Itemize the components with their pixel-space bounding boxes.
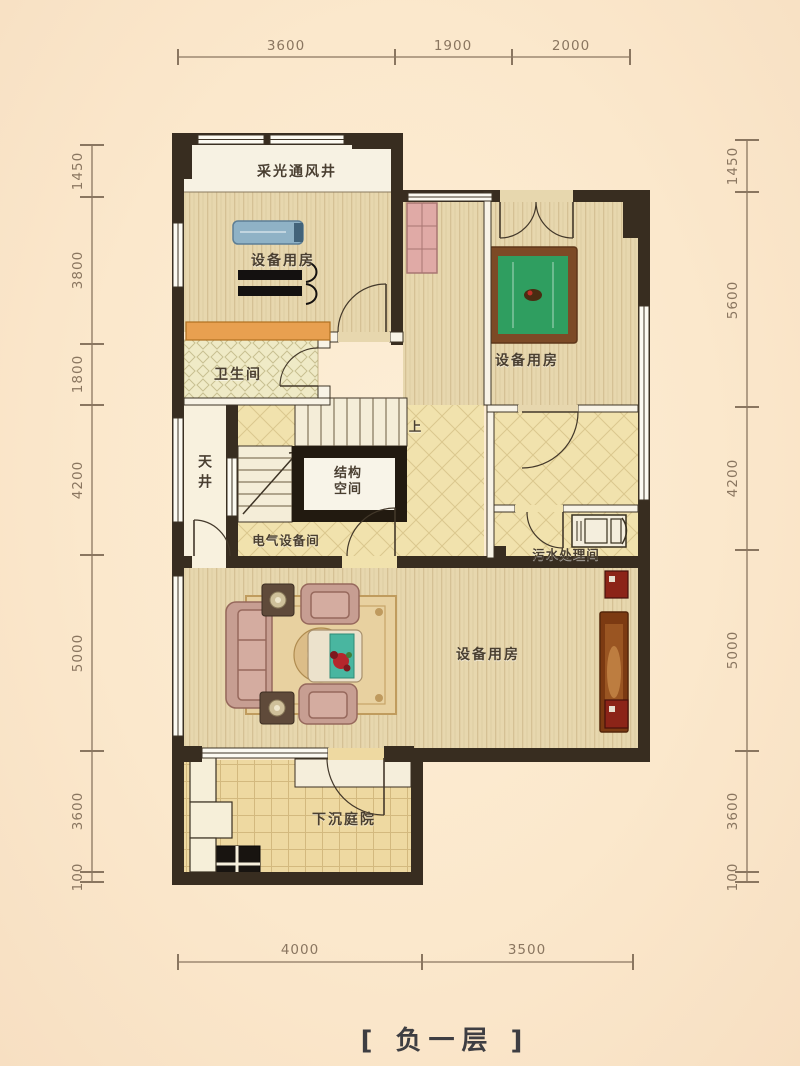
room-label-electrical: 电气设备间 <box>211 530 361 549</box>
room-label-sewage: 污水处理间 <box>496 544 636 563</box>
coffee-table <box>308 630 362 682</box>
dimension-label: 3600 <box>725 781 741 841</box>
stairs-up-label: 上 <box>406 416 424 435</box>
room-label-lightwell: 天井 <box>194 434 214 514</box>
dimension-label: 4000 <box>260 942 340 958</box>
dimension-label: 3800 <box>70 240 86 300</box>
counter <box>186 322 330 340</box>
treadmill <box>233 221 303 244</box>
dimension-label: 2000 <box>531 38 611 54</box>
courtyard-landing <box>295 759 411 787</box>
room-label-shaft: 采光通风井 <box>217 161 377 181</box>
storage-cabinet <box>407 203 437 273</box>
dimension-label: 100 <box>725 847 741 907</box>
dimension-label: 4200 <box>70 450 86 510</box>
washing-machine <box>572 515 627 547</box>
dimension-label: 4200 <box>725 448 741 508</box>
floor-plan: 采光通风井 设备用房 卫生间 天井 结构空间 电气设备间 污水处理间 设备用房 … <box>0 0 800 1066</box>
dimension-label: 3500 <box>487 942 567 958</box>
dimension-label: 5600 <box>725 270 741 330</box>
dimension-label: 100 <box>70 847 86 907</box>
room-label-living: 设备用房 <box>428 644 548 664</box>
dimension-label: 1900 <box>413 38 493 54</box>
room-label-courtyard: 下沉庭院 <box>284 809 404 829</box>
dimension-label: 5000 <box>725 620 741 680</box>
dimension-label: 1450 <box>70 141 86 201</box>
room-label-structure: 结构空间 <box>298 466 398 498</box>
floorplan-svg <box>0 0 800 1066</box>
room-label-billiard: 设备用房 <box>467 350 587 370</box>
billiard-table <box>489 247 577 343</box>
room-label-gym: 设备用房 <box>223 250 343 270</box>
structure-line2: 空间 <box>334 482 362 497</box>
dimension-label: 1800 <box>70 344 86 404</box>
floor-title: [ 负一层 ] <box>325 1020 565 1057</box>
room-label-bathroom: 卫生间 <box>178 364 298 384</box>
dimension-label: 3600 <box>246 38 326 54</box>
dimension-label: 1450 <box>725 136 741 196</box>
dimension-label: 5000 <box>70 623 86 683</box>
structure-line1: 结构 <box>334 466 362 481</box>
dimension-label: 3600 <box>70 781 86 841</box>
